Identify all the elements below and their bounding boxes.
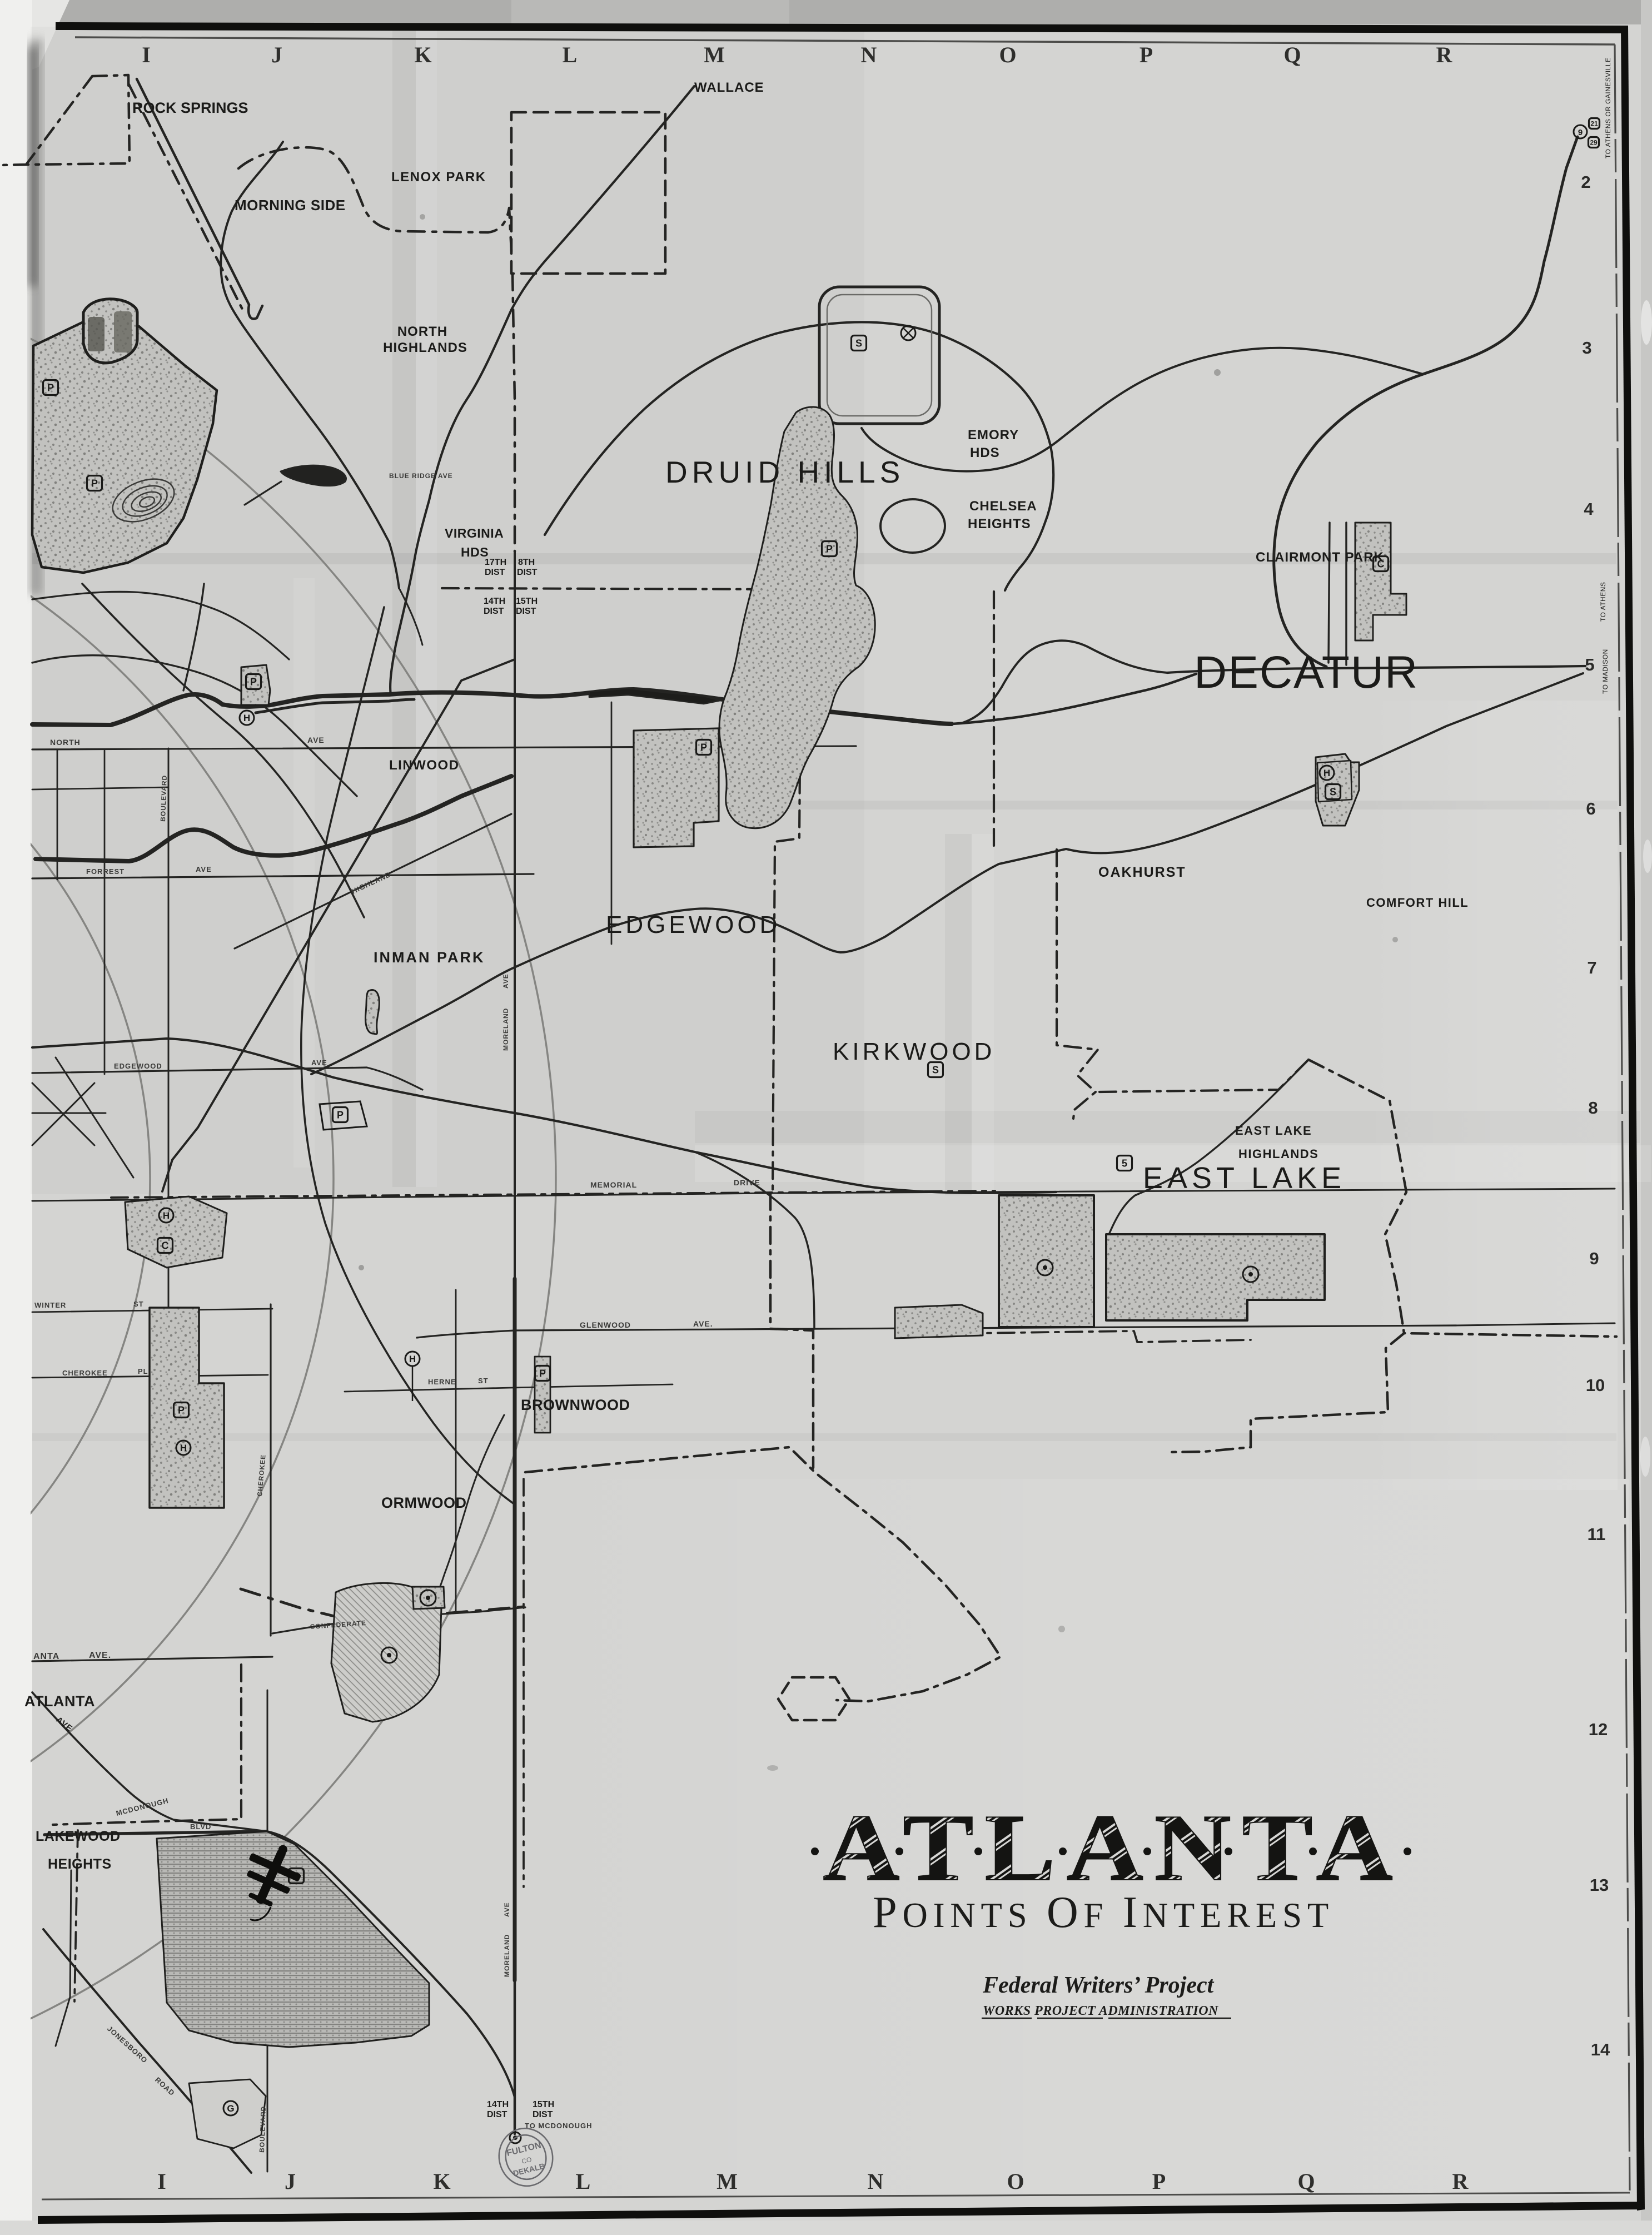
svg-text:ORMWOOD: ORMWOOD	[381, 1494, 466, 1511]
svg-text:DIST: DIST	[533, 2110, 553, 2119]
svg-text:15TH: 15TH	[533, 2100, 554, 2109]
svg-text:EAST LAKE: EAST LAKE	[1143, 1161, 1346, 1195]
svg-text:L: L	[576, 2169, 591, 2194]
svg-text:CHEROKEE: CHEROKEE	[62, 1369, 108, 1377]
svg-text:AVE: AVE	[311, 1059, 327, 1067]
svg-text:HDS: HDS	[970, 445, 1000, 460]
svg-text:P: P	[539, 1368, 546, 1379]
svg-text:FORREST: FORREST	[86, 867, 125, 876]
svg-text:NORTH: NORTH	[397, 324, 447, 339]
svg-text:EMORY: EMORY	[968, 428, 1019, 443]
svg-text:17TH: 17TH	[485, 558, 506, 567]
svg-text:KIRKWOOD: KIRKWOOD	[833, 1038, 995, 1065]
svg-text:15TH: 15TH	[516, 597, 538, 606]
svg-text:O: O	[999, 42, 1016, 67]
svg-text:DECATUR: DECATUR	[1194, 647, 1419, 698]
svg-text:AVE: AVE	[196, 865, 212, 873]
svg-text:LENOX PARK: LENOX PARK	[391, 170, 486, 185]
svg-text:AVE: AVE	[503, 1902, 511, 1917]
svg-text:P: P	[178, 1404, 185, 1415]
svg-text:MORNING SIDE: MORNING SIDE	[235, 197, 346, 213]
svg-text:TO MCDONOUGH: TO MCDONOUGH	[525, 2122, 593, 2130]
svg-text:11: 11	[1588, 1524, 1606, 1544]
svg-text:Federal Writers’ Project: Federal Writers’ Project	[982, 1973, 1215, 1998]
svg-text:P: P	[47, 382, 54, 393]
svg-text:P: P	[337, 1109, 344, 1120]
svg-text:HEIGHTS: HEIGHTS	[968, 516, 1031, 532]
svg-text:R: R	[1436, 42, 1453, 67]
svg-text:BLVD: BLVD	[190, 1822, 211, 1831]
svg-text:DIST: DIST	[516, 607, 536, 616]
svg-text:L: L	[563, 42, 578, 67]
svg-text:ROCK SPRINGS: ROCK SPRINGS	[132, 100, 248, 116]
svg-text:9: 9	[1578, 128, 1583, 137]
svg-text:LAKEWOOD: LAKEWOOD	[36, 1829, 121, 1844]
svg-text:NORTH: NORTH	[50, 738, 81, 747]
svg-text:P: P	[826, 543, 833, 554]
svg-text:12: 12	[1589, 1720, 1608, 1739]
svg-text:13: 13	[1590, 1875, 1609, 1895]
svg-text:MORELAND: MORELAND	[503, 1934, 511, 1977]
svg-text:J: J	[271, 42, 282, 67]
svg-text:J: J	[285, 2169, 296, 2194]
svg-text:14TH: 14TH	[484, 597, 505, 606]
svg-text:BOULEVARD: BOULEVARD	[159, 775, 168, 822]
svg-text:29: 29	[1590, 138, 1598, 146]
svg-text:I: I	[157, 2169, 166, 2194]
svg-text:S: S	[1330, 786, 1336, 797]
svg-text:HIGHLANDS: HIGHLANDS	[1238, 1147, 1318, 1161]
svg-text:OAKHURST: OAKHURST	[1098, 865, 1186, 880]
svg-text:S: S	[932, 1064, 939, 1075]
svg-text:P: P	[250, 676, 257, 687]
svg-text:CHELSEA: CHELSEA	[969, 499, 1037, 514]
svg-text:ST: ST	[478, 1377, 489, 1385]
svg-text:P: P	[1152, 2169, 1166, 2194]
svg-text:DIST: DIST	[484, 607, 504, 616]
svg-text:INMAN PARK: INMAN PARK	[374, 949, 485, 966]
svg-text:7: 7	[1587, 958, 1596, 977]
svg-text:14: 14	[1591, 2040, 1610, 2059]
svg-text:ATLANTA: ATLANTA	[24, 1693, 95, 1710]
svg-text:HIGHLANDS: HIGHLANDS	[383, 340, 467, 355]
svg-text:H: H	[1323, 768, 1330, 778]
svg-text:WALLACE: WALLACE	[694, 80, 764, 95]
svg-text:K: K	[433, 2169, 450, 2194]
svg-text:M: M	[716, 2169, 738, 2194]
svg-text:Q: Q	[1283, 42, 1301, 67]
svg-text:H: H	[180, 1443, 187, 1453]
svg-text:H: H	[243, 713, 250, 723]
svg-text:TO MADISON: TO MADISON	[1601, 649, 1609, 694]
svg-text:HERNE: HERNE	[428, 1378, 456, 1386]
svg-text:GLENWOOD: GLENWOOD	[580, 1320, 631, 1329]
svg-text:14TH: 14TH	[487, 2100, 509, 2109]
svg-text:POINTS OF INTEREST: POINTS OF INTEREST	[873, 1888, 1334, 1937]
svg-text:WORKS PROJECT ADMINISTRATION: WORKS PROJECT ADMINISTRATION	[983, 2004, 1219, 2018]
svg-text:10: 10	[1586, 1375, 1605, 1395]
svg-text:CLAIRMONT PARK: CLAIRMONT PARK	[1256, 550, 1384, 565]
svg-text:BOULEVARD: BOULEVARD	[258, 2106, 267, 2153]
svg-text:ANTA: ANTA	[33, 1652, 59, 1661]
svg-text:4: 4	[1584, 499, 1594, 519]
svg-text:TO ATHENS OR GAINESVILLE: TO ATHENS OR GAINESVILLE	[1604, 57, 1612, 158]
svg-text:6: 6	[1586, 799, 1595, 818]
svg-text:8TH: 8TH	[518, 558, 535, 567]
svg-text:COMFORT HILL: COMFORT HILL	[1366, 896, 1469, 910]
svg-text:EDGEWOOD: EDGEWOOD	[114, 1062, 162, 1070]
svg-text:I: I	[142, 42, 151, 67]
svg-text:R: R	[1452, 2169, 1469, 2194]
svg-text:Q: Q	[1297, 2169, 1315, 2194]
svg-text:DRUID HILLS: DRUID HILLS	[665, 455, 904, 489]
svg-text:ATLANTA: ATLANTA	[823, 1795, 1404, 1901]
svg-text:LINWOOD: LINWOOD	[389, 758, 459, 773]
svg-text:DIST: DIST	[517, 568, 538, 577]
svg-text:H: H	[163, 1210, 170, 1221]
svg-text:VIRGINIA: VIRGINIA	[445, 526, 504, 540]
svg-text:HEIGHTS: HEIGHTS	[48, 1856, 112, 1872]
svg-text:DRIVE: DRIVE	[734, 1178, 760, 1187]
svg-text:EDGEWOOD: EDGEWOOD	[606, 911, 780, 938]
svg-text:P: P	[700, 742, 707, 753]
svg-text:P: P	[91, 478, 98, 489]
svg-text:5: 5	[1122, 1158, 1127, 1169]
svg-text:5: 5	[1585, 655, 1594, 674]
svg-text:3: 3	[1582, 338, 1591, 357]
svg-text:N: N	[868, 2169, 884, 2194]
svg-text:9: 9	[1589, 1249, 1599, 1268]
svg-text:DIST: DIST	[485, 568, 505, 577]
svg-text:K: K	[414, 42, 431, 67]
svg-text:WINTER: WINTER	[34, 1301, 66, 1309]
svg-text:C: C	[162, 1240, 169, 1251]
svg-text:AVE.: AVE.	[89, 1651, 111, 1660]
svg-text:TO ATHENS: TO ATHENS	[1599, 582, 1607, 622]
svg-text:21: 21	[1590, 120, 1598, 127]
svg-text:MORELAND: MORELAND	[502, 1008, 510, 1051]
svg-text:EAST LAKE: EAST LAKE	[1235, 1124, 1312, 1138]
svg-text:BLUE RIDGE AVE: BLUE RIDGE AVE	[389, 472, 453, 480]
svg-text:M: M	[704, 42, 725, 67]
svg-text:H: H	[409, 1354, 416, 1364]
svg-text:MEMORIAL: MEMORIAL	[590, 1180, 637, 1189]
svg-text:2: 2	[1581, 172, 1590, 192]
svg-text:N: N	[861, 42, 877, 67]
svg-text:P: P	[1140, 42, 1153, 67]
svg-text:G: G	[227, 2103, 234, 2114]
svg-text:8: 8	[1588, 1098, 1598, 1117]
svg-text:O: O	[1007, 2169, 1024, 2194]
svg-text:BROWNWOOD: BROWNWOOD	[521, 1397, 630, 1413]
svg-text:PL: PL	[138, 1367, 148, 1375]
svg-text:AVE: AVE	[307, 736, 325, 744]
svg-text:DIST: DIST	[487, 2110, 507, 2119]
svg-text:AVE: AVE	[502, 974, 510, 989]
svg-text:ST: ST	[133, 1300, 144, 1308]
svg-text:AVE.: AVE.	[693, 1319, 713, 1328]
svg-text:S: S	[855, 337, 862, 349]
